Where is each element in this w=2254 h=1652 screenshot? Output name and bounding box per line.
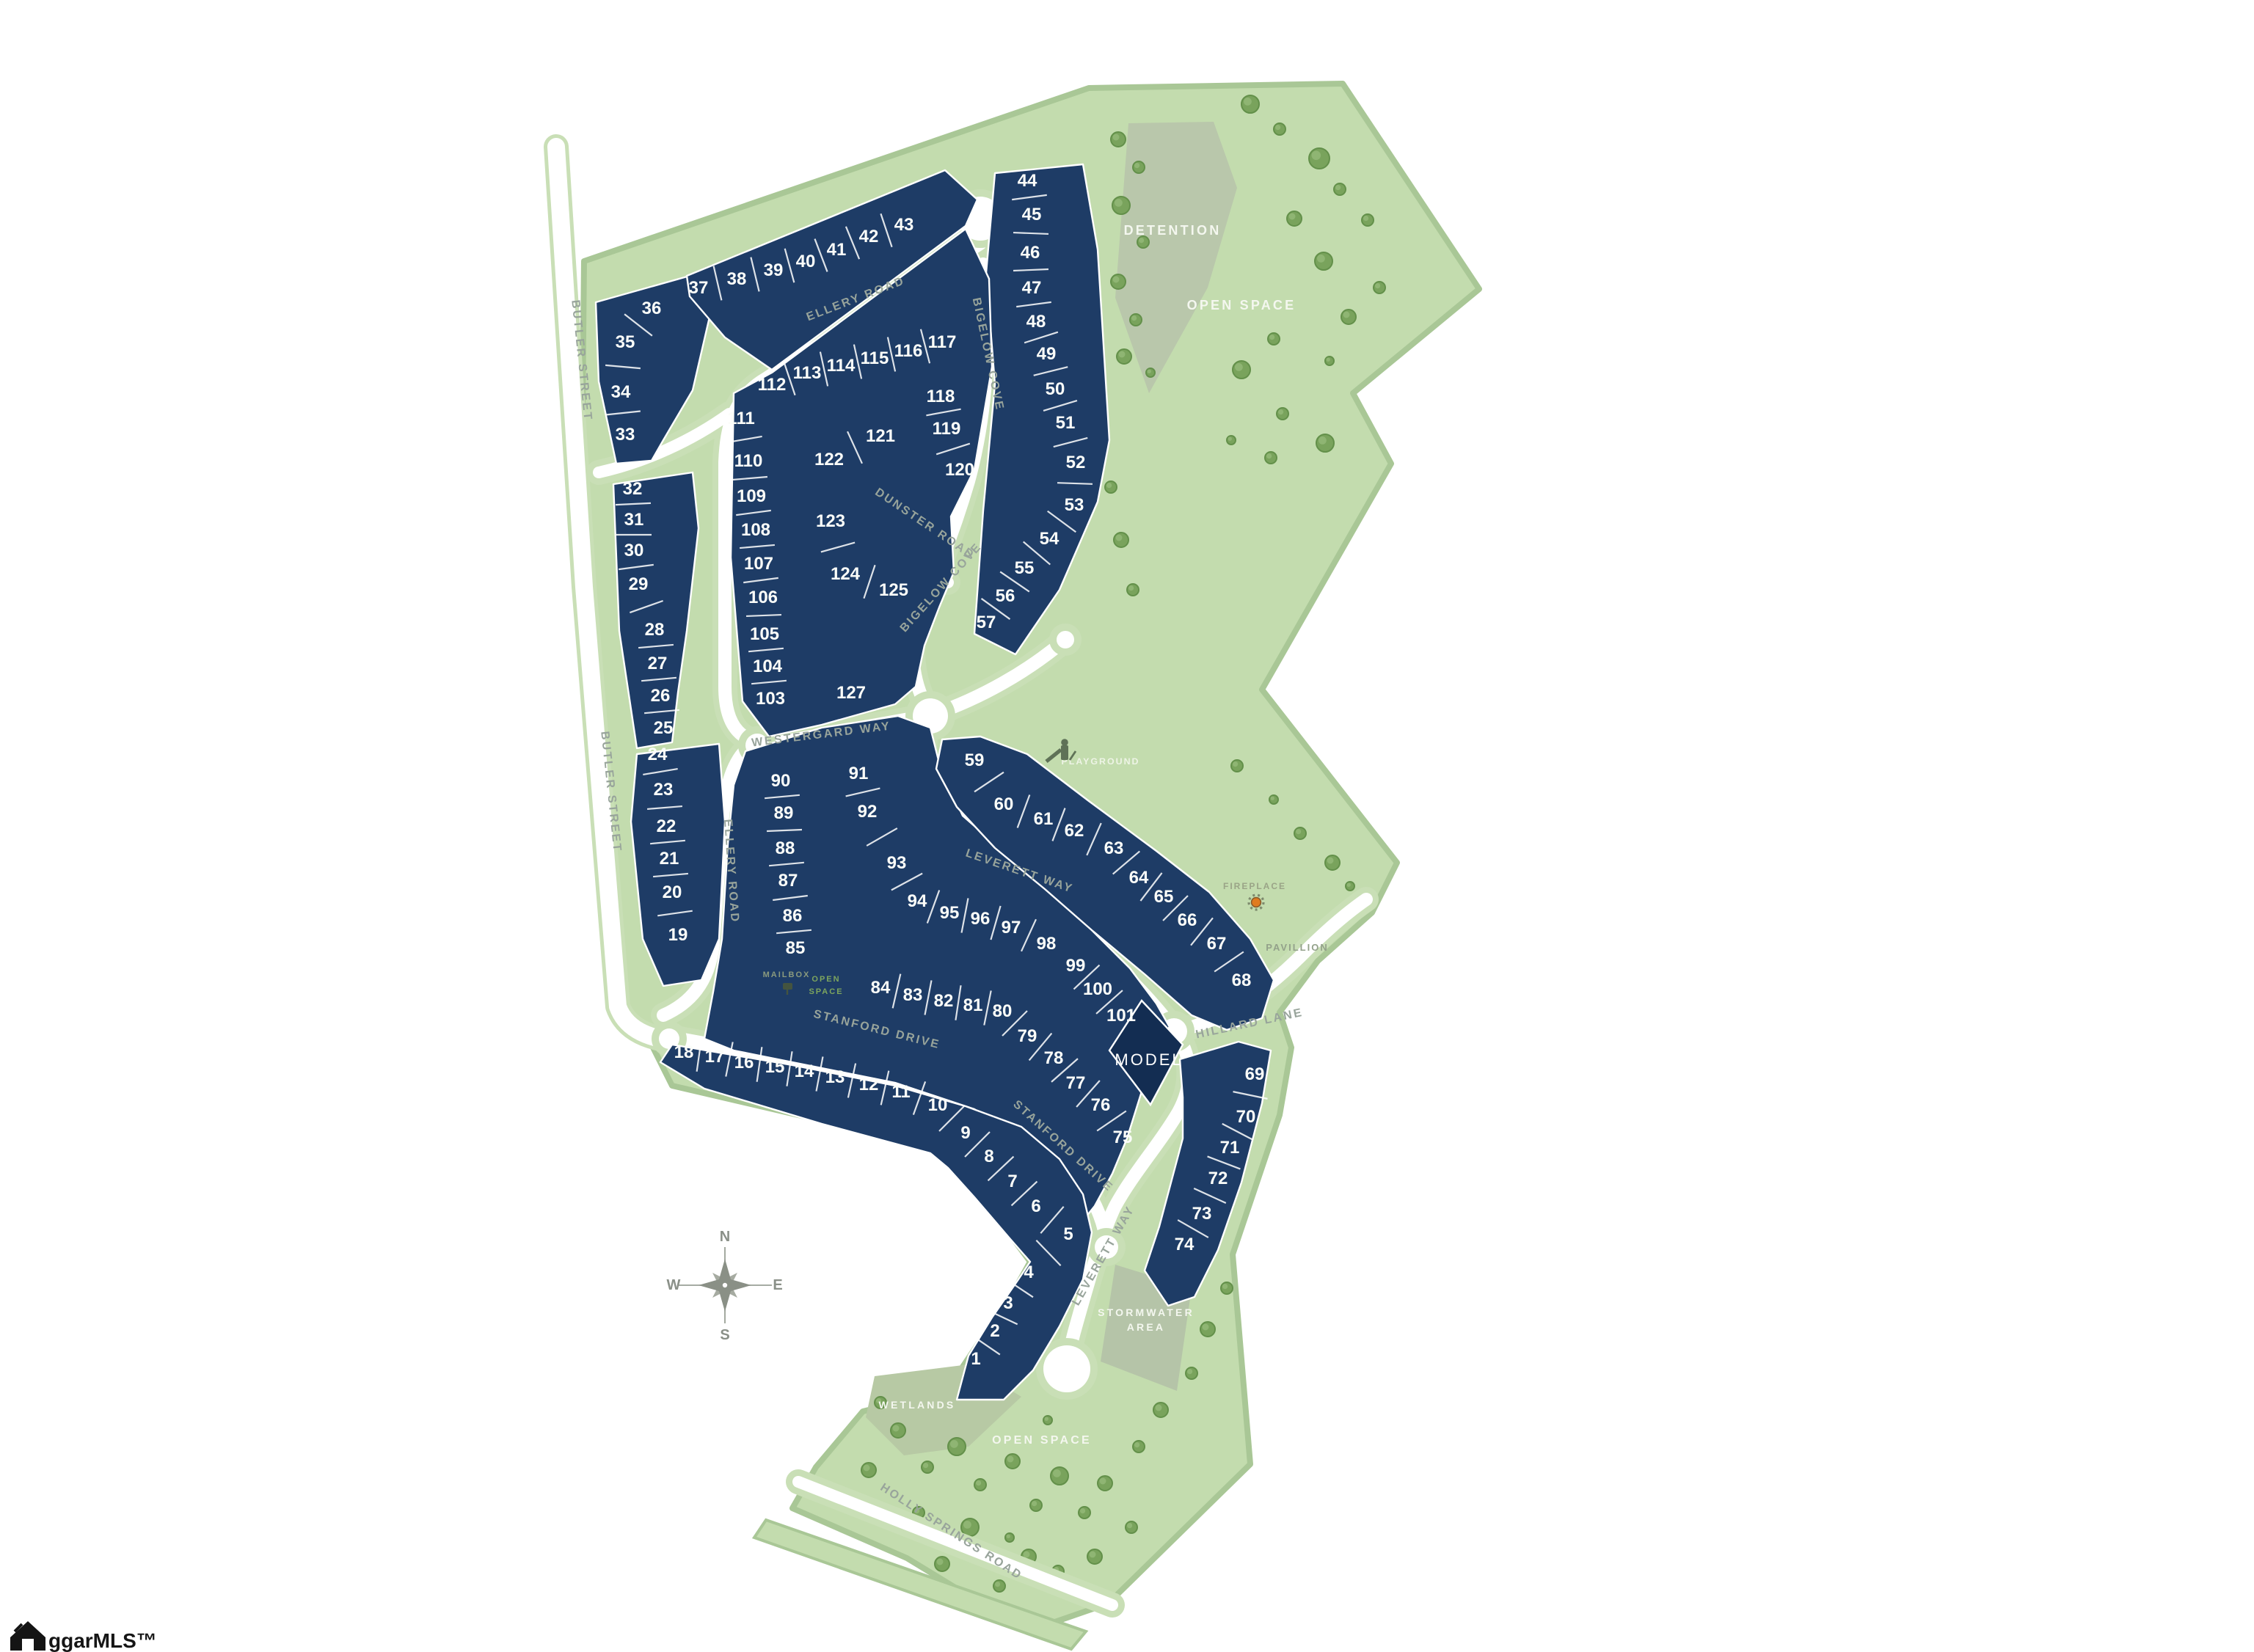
- lot-number-122: 122: [814, 450, 844, 469]
- lot-number-33: 33: [616, 425, 635, 445]
- lot-number-3: 3: [1003, 1293, 1013, 1313]
- tree-icon-highlight: [976, 1480, 981, 1485]
- lot-number-76: 76: [1091, 1095, 1111, 1115]
- tree-icon-highlight: [1228, 437, 1232, 441]
- tree-icon-highlight: [1203, 1324, 1209, 1331]
- lot-number-81: 81: [963, 995, 983, 1015]
- tree-icon-highlight: [1100, 1478, 1106, 1485]
- tree-icon-highlight: [1127, 1523, 1132, 1528]
- lot-number-59: 59: [965, 750, 985, 770]
- lot-number-110: 110: [734, 451, 763, 471]
- lot-number-68: 68: [1232, 971, 1252, 990]
- lot-number-17: 17: [705, 1047, 725, 1067]
- lot-number-2: 2: [990, 1321, 999, 1341]
- lot-number-13: 13: [825, 1067, 845, 1087]
- tree-icon-highlight: [1032, 1501, 1037, 1506]
- lot-number-99: 99: [1066, 956, 1086, 976]
- lot-number-20: 20: [663, 882, 682, 902]
- lot-number-42: 42: [859, 227, 879, 246]
- lot-number-44: 44: [1018, 171, 1037, 191]
- arealbl-open-space: OPEN SPACE: [1187, 298, 1296, 313]
- lot-number-79: 79: [1018, 1026, 1037, 1046]
- lot-number-57: 57: [977, 613, 996, 632]
- tree-icon-highlight: [1312, 151, 1321, 161]
- lot-number-26: 26: [651, 686, 671, 706]
- lot-number-111: 111: [727, 409, 754, 428]
- lot-number-93: 93: [887, 853, 907, 873]
- lot-number-112: 112: [758, 375, 787, 395]
- compass-east-label: E: [773, 1277, 782, 1293]
- lot-number-6: 6: [1031, 1196, 1040, 1216]
- lot-number-88: 88: [776, 838, 795, 858]
- tree-icon-highlight: [1113, 277, 1120, 283]
- lot-number-39: 39: [764, 260, 784, 280]
- tree-icon-highlight: [1119, 351, 1126, 358]
- lot-number-19: 19: [668, 925, 688, 945]
- tree-icon-highlight: [1115, 199, 1123, 207]
- tree-icon-highlight: [1363, 216, 1368, 221]
- tree-icon-highlight: [1222, 1284, 1228, 1289]
- lot-number-54: 54: [1040, 529, 1059, 549]
- lot-number-86: 86: [783, 906, 803, 926]
- lot-number-25: 25: [654, 718, 674, 738]
- model-lot-label: MODEL: [1115, 1050, 1183, 1069]
- amenlbl-mailbox: MAILBOX: [763, 971, 811, 979]
- lot-number-89: 89: [774, 803, 794, 823]
- lot-number-62: 62: [1065, 821, 1084, 841]
- lot-number-46: 46: [1021, 243, 1040, 263]
- arealbl-detention: DETENTION: [1124, 223, 1222, 238]
- lot-number-55: 55: [1015, 558, 1035, 578]
- tree-icon-highlight: [1090, 1552, 1096, 1558]
- tree-icon-highlight: [1347, 883, 1351, 887]
- arealbl-wetlands: WETLANDS: [879, 1399, 956, 1411]
- lot-number-78: 78: [1044, 1048, 1064, 1068]
- tree-icon-highlight: [1045, 1417, 1048, 1421]
- lot-number-48: 48: [1026, 312, 1046, 332]
- lot-number-65: 65: [1154, 887, 1174, 907]
- amenlbl-pavillion: PAVILLION: [1266, 942, 1328, 953]
- lot-number-41: 41: [827, 240, 847, 260]
- tree-icon-highlight: [1327, 358, 1330, 362]
- tree-icon-highlight: [1335, 185, 1341, 190]
- lot-number-67: 67: [1207, 934, 1227, 954]
- house-logo-icon: [10, 1621, 45, 1651]
- lot-number-85: 85: [786, 938, 806, 958]
- lot-number-40: 40: [796, 252, 816, 271]
- lot-number-95: 95: [940, 903, 960, 923]
- lot-number-66: 66: [1178, 910, 1197, 930]
- amenlbl-space: SPACE: [809, 987, 843, 996]
- lot-number-12: 12: [859, 1075, 879, 1094]
- compass-west-label: W: [667, 1277, 681, 1293]
- lot-number-74: 74: [1175, 1235, 1195, 1254]
- lot-number-28: 28: [645, 620, 665, 640]
- lot-number-109: 109: [737, 486, 766, 506]
- lot-number-123: 123: [816, 511, 845, 531]
- compass-south-label: S: [720, 1327, 729, 1343]
- mls-watermark: ggarMLS™: [10, 1621, 157, 1652]
- lot-number-127: 127: [836, 683, 866, 703]
- tree-icon-highlight: [1134, 163, 1139, 168]
- tree-icon-highlight: [1134, 1442, 1139, 1447]
- amenlbl-open: OPEN: [811, 975, 840, 984]
- tree-icon-highlight: [1244, 98, 1252, 106]
- lot-number-9: 9: [960, 1123, 970, 1143]
- cul-de-sac: [1057, 631, 1074, 648]
- lot-number-98: 98: [1037, 934, 1057, 954]
- lot-number-117: 117: [928, 332, 957, 352]
- lot-number-5: 5: [1063, 1224, 1073, 1244]
- amenlbl-playground: PLAYGROUND: [1062, 756, 1140, 767]
- tree-icon-highlight: [1116, 535, 1123, 541]
- tree-icon-highlight: [1007, 1456, 1014, 1463]
- lot-number-114: 114: [827, 356, 856, 376]
- lot-number-90: 90: [771, 771, 791, 791]
- tree-icon-highlight: [1278, 409, 1283, 414]
- lot-number-61: 61: [1034, 809, 1054, 829]
- tree-icon-highlight: [1289, 213, 1296, 220]
- lot-number-30: 30: [624, 541, 644, 560]
- lot-number-31: 31: [624, 510, 644, 530]
- tree-icon-highlight: [1327, 858, 1334, 864]
- lot-number-22: 22: [657, 816, 676, 836]
- tree-icon-highlight: [1187, 1369, 1192, 1374]
- lot-number-38: 38: [727, 269, 747, 289]
- tree-icon-highlight: [1080, 1508, 1085, 1513]
- tree-icon-highlight: [1266, 453, 1272, 458]
- lot-number-118: 118: [927, 387, 955, 406]
- lot-number-96: 96: [971, 909, 991, 929]
- lot-number-69: 69: [1245, 1064, 1265, 1084]
- tree-icon-highlight: [1156, 1405, 1162, 1411]
- tree-icon-highlight: [1024, 1552, 1030, 1558]
- lot-number-71: 71: [1220, 1138, 1240, 1158]
- lot-number-94: 94: [908, 891, 927, 911]
- lot-number-18: 18: [674, 1042, 694, 1062]
- tree-icon-highlight: [1343, 312, 1350, 318]
- compass-north-label: N: [720, 1229, 730, 1245]
- tree-icon-highlight: [1233, 761, 1238, 767]
- lot-number-82: 82: [934, 991, 954, 1011]
- lot-number-35: 35: [616, 332, 635, 352]
- lot-number-10: 10: [928, 1095, 948, 1115]
- lot-number-51: 51: [1056, 413, 1076, 433]
- lot-number-101: 101: [1106, 1006, 1136, 1026]
- compass-rose: N E S W: [667, 1229, 783, 1343]
- tree-icon-highlight: [963, 1521, 971, 1529]
- lot-number-77: 77: [1066, 1073, 1086, 1093]
- tree-icon-highlight: [1113, 134, 1120, 141]
- lot-number-72: 72: [1208, 1169, 1228, 1188]
- lot-number-16: 16: [734, 1053, 754, 1072]
- tree-icon-highlight: [1106, 483, 1112, 488]
- tree-icon-highlight: [1148, 370, 1151, 373]
- lot-number-92: 92: [858, 802, 878, 822]
- lot-number-115: 115: [861, 348, 889, 368]
- lot-number-36: 36: [642, 299, 662, 318]
- lot-number-107: 107: [744, 554, 773, 574]
- lot-number-113: 113: [793, 363, 822, 383]
- lot-number-34: 34: [611, 382, 631, 402]
- tree-icon-highlight: [893, 1425, 900, 1432]
- tree-icon-highlight: [1296, 829, 1301, 834]
- tree-icon-highlight: [1053, 1469, 1061, 1477]
- tree-icon-highlight: [1131, 315, 1137, 321]
- lot-number-121: 121: [866, 426, 895, 446]
- lot-number-53: 53: [1065, 495, 1084, 515]
- lot-number-37: 37: [689, 278, 709, 298]
- lot-number-84: 84: [871, 978, 891, 998]
- tree-icon-highlight: [950, 1440, 958, 1448]
- lot-number-120: 120: [945, 460, 974, 480]
- lot-number-103: 103: [756, 689, 785, 709]
- tree-icon-highlight: [1319, 436, 1327, 445]
- lot-number-52: 52: [1066, 453, 1086, 472]
- lot-number-124: 124: [831, 564, 861, 584]
- lot-number-49: 49: [1037, 344, 1057, 364]
- lot-number-70: 70: [1236, 1107, 1256, 1127]
- lot-number-108: 108: [741, 520, 770, 540]
- lot-number-100: 100: [1083, 979, 1112, 999]
- lot-number-125: 125: [879, 580, 908, 600]
- lot-number-4: 4: [1024, 1262, 1034, 1282]
- tree-icon-highlight: [1275, 125, 1280, 130]
- lot-number-8: 8: [984, 1147, 993, 1166]
- tree-icon-highlight: [864, 1465, 870, 1472]
- lot-number-15: 15: [765, 1057, 785, 1077]
- tree-icon-highlight: [1269, 335, 1274, 340]
- lot-number-91: 91: [849, 764, 869, 783]
- lot-number-73: 73: [1192, 1204, 1212, 1224]
- cul-de-sac: [1043, 1345, 1090, 1392]
- lot-number-64: 64: [1129, 868, 1149, 888]
- lot-number-23: 23: [654, 780, 674, 800]
- lot-number-21: 21: [660, 849, 679, 869]
- lot-number-45: 45: [1022, 205, 1042, 224]
- tree-icon-highlight: [1128, 585, 1134, 591]
- lot-number-87: 87: [778, 871, 798, 891]
- lot-number-27: 27: [648, 654, 668, 673]
- lot-number-47: 47: [1022, 278, 1042, 298]
- arealbl-area: AREA: [1127, 1321, 1165, 1333]
- tree-icon-highlight: [923, 1463, 928, 1468]
- tree-icon-highlight: [995, 1582, 1000, 1587]
- lot-number-43: 43: [894, 215, 914, 235]
- arealbl-open-space: OPEN SPACE: [992, 1434, 1092, 1447]
- lot-number-24: 24: [648, 745, 668, 764]
- amenlbl-fireplace: FIREPLACE: [1223, 881, 1286, 891]
- lot-number-106: 106: [748, 588, 778, 607]
- lot-number-7: 7: [1007, 1172, 1017, 1191]
- tree-icon-highlight: [1271, 797, 1274, 800]
- mls-watermark-text: ggarMLS™: [48, 1629, 157, 1652]
- lot-number-119: 119: [933, 419, 961, 439]
- lot-number-29: 29: [629, 574, 649, 594]
- tree-icon-highlight: [1317, 255, 1325, 263]
- subdivision-site-plan-map: MODEL 1234567891011121314151617181920212…: [0, 0, 2254, 1652]
- lot-number-75: 75: [1113, 1127, 1133, 1147]
- lot-number-97: 97: [1002, 918, 1021, 938]
- lot-number-50: 50: [1046, 379, 1065, 399]
- tree-icon-highlight: [1139, 238, 1144, 243]
- lot-number-104: 104: [753, 657, 783, 676]
- lot-number-1: 1: [971, 1349, 980, 1369]
- lot-number-80: 80: [993, 1001, 1013, 1021]
- lot-number-60: 60: [994, 794, 1014, 814]
- lot-number-83: 83: [903, 985, 923, 1005]
- arealbl-stormwater: STORMWATER: [1098, 1306, 1195, 1318]
- tree-icon-highlight: [1007, 1535, 1010, 1538]
- tree-icon-highlight: [937, 1559, 944, 1565]
- tree-icon-highlight: [1235, 363, 1243, 371]
- lot-number-11: 11: [891, 1082, 910, 1102]
- lot-number-116: 116: [894, 341, 923, 361]
- lot-number-105: 105: [750, 624, 779, 644]
- lot-number-63: 63: [1104, 838, 1124, 858]
- lot-number-14: 14: [795, 1061, 814, 1081]
- tree-icon-highlight: [1375, 283, 1380, 288]
- lot-number-32: 32: [623, 479, 643, 499]
- lot-number-56: 56: [996, 586, 1015, 606]
